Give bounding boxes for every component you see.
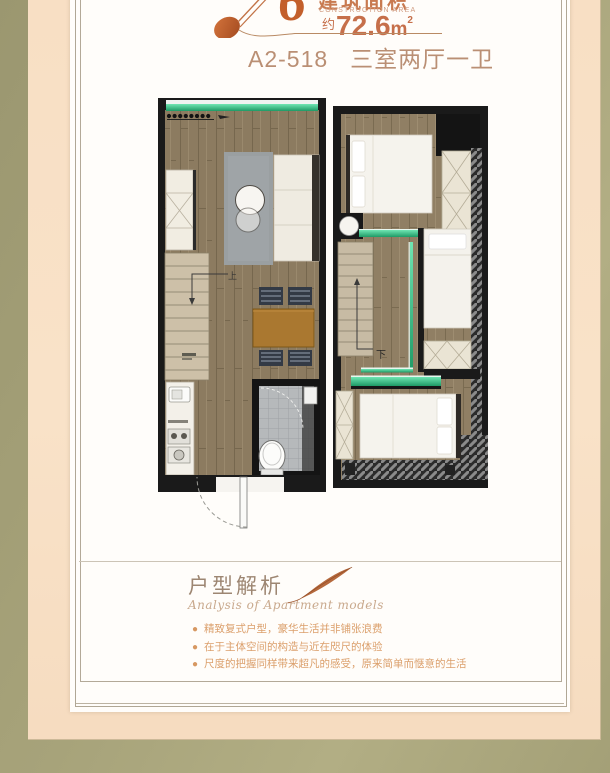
card-bottom-rule xyxy=(76,703,564,704)
living-room-wardrobe xyxy=(166,170,196,250)
unit-title: A2-518三室两厅一卫 xyxy=(248,40,494,74)
analysis-subtitle: Analysis of Apartment models xyxy=(188,598,384,612)
kitchen xyxy=(166,382,194,475)
brochure-page: { "header": { "big_numeral": "6", "area_… xyxy=(0,0,610,773)
bullet-text: 在于主体空间的构造与近在咫尺的体验 xyxy=(204,641,383,653)
living-room xyxy=(224,152,319,265)
floorplan-upper-level: 下 xyxy=(333,103,488,490)
music-note-icon xyxy=(195,0,445,38)
bullet-item: ●精致复式户型，豪华生活并非铺张浪费 xyxy=(192,621,467,639)
unit-code: A2-518 xyxy=(248,46,328,72)
bullet-dot-icon: ● xyxy=(192,657,198,674)
floorplan-lower-level: 上 xyxy=(158,98,328,545)
up-label: 上 xyxy=(228,271,237,281)
down-label: 下 xyxy=(376,350,386,361)
entry-door xyxy=(158,475,326,528)
bullet-text: 尺度的把握同样带来超凡的感受，原来简单而惬意的生活 xyxy=(204,658,467,670)
bullet-dot-icon: ● xyxy=(192,640,198,657)
analysis-bullet-list: ●精致复式户型，豪华生活并非铺张浪费 ●在于主体空间的构造与近在咫尺的体验 ●尺… xyxy=(192,621,467,674)
bullet-text: 精致复式户型，豪华生活并非铺张浪费 xyxy=(204,623,383,635)
bathroom xyxy=(252,379,320,477)
bullet-item: ●在于主体空间的构造与近在咫尺的体验 xyxy=(192,639,467,657)
bullet-item: ●尺度的把握同样带来超凡的感受，原来简单而惬意的生活 xyxy=(192,656,467,674)
section-divider xyxy=(79,561,561,562)
analysis-title: 户型解析 xyxy=(188,570,284,600)
unit-layout: 三室两厅一卫 xyxy=(350,46,494,72)
bullet-dot-icon: ● xyxy=(192,622,198,639)
